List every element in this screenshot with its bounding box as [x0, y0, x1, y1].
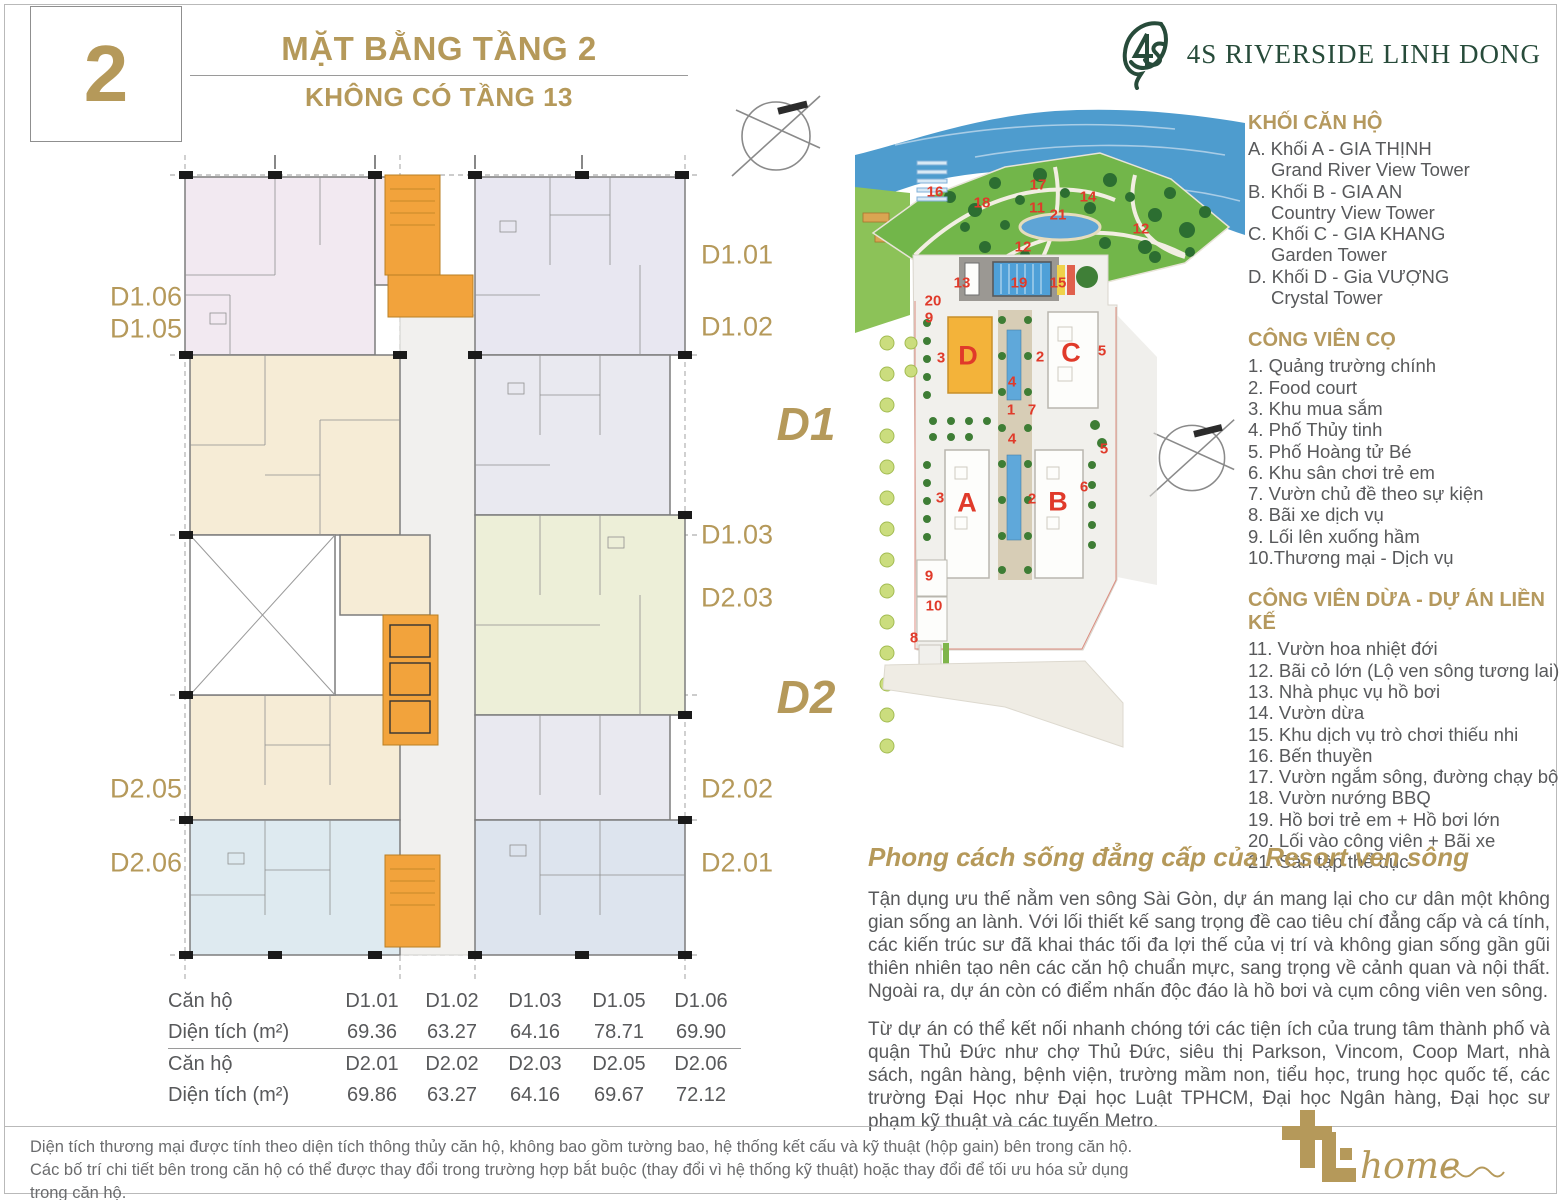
floor-number-box: 2 [30, 6, 182, 142]
brand-name: 4S RIVERSIDE LINH DONG [1187, 39, 1541, 70]
site-building-label: B [1048, 487, 1068, 518]
brochure-page: 2 MẶT BẰNG TẦNG 2 KHÔNG CÓ TẦNG 13 4S RI… [0, 0, 1563, 1200]
legend-item: B. Khối B - GIA AN [1248, 181, 1560, 202]
unit-label: D2.06 [110, 848, 182, 879]
site-point-label: 4 [1008, 374, 1016, 391]
page-title: MẶT BẰNG TẦNG 2 [190, 30, 688, 68]
unit-label: D1.01 [701, 240, 773, 271]
table-cell: D1.02 [411, 986, 493, 1017]
site-point-label: 13 [954, 275, 971, 292]
table-cell: 72.12 [661, 1080, 741, 1111]
legend-item: 8. Bãi xe dịch vụ [1248, 504, 1560, 525]
site-point-label: 7 [1028, 402, 1036, 419]
ttl-home-logo: home [1280, 1108, 1510, 1188]
legend-section-1: CÔNG VIÊN CỌ1. Quảng trường chính2. Food… [1248, 329, 1560, 568]
table-cell: D1.01 [333, 986, 411, 1017]
compass-icon [728, 88, 824, 184]
site-point-label: 4 [1008, 431, 1016, 448]
legend-item: 13. Nhà phục vụ hồ bơi [1248, 681, 1560, 702]
legend-item: 9. Lối lên xuống hầm [1248, 526, 1560, 547]
legend-item: 12. Bãi cỏ lớn (Lộ ven sông tương lai) [1248, 660, 1560, 681]
footer-note-2: Các bố trí chi tiết bên trong căn hộ có … [30, 1159, 1140, 1200]
legend-item: 1. Quảng trường chính [1248, 355, 1560, 376]
floor-plan-drawing [170, 155, 700, 980]
unit-label: D2.02 [701, 774, 773, 805]
site-point-label: 5 [1100, 441, 1108, 458]
site-point-label: 15 [1050, 275, 1067, 292]
table-cell: 69.36 [333, 1017, 411, 1049]
unit-label: D2.01 [701, 848, 773, 879]
legend-item: 15. Khu dịch vụ trò chơi thiếu nhi [1248, 724, 1560, 745]
unit-area-table: Căn hộD1.01D1.02D1.03D1.05D1.06Diện tích… [168, 986, 741, 1111]
site-point-label: 12 [1015, 239, 1032, 256]
site-building-label: D [958, 341, 978, 372]
4s-leaf-icon [1117, 18, 1179, 90]
unit-label: D2.05 [110, 774, 182, 805]
legend-item: 14. Vườn dừa [1248, 702, 1560, 723]
legend-item: Grand River View Tower [1248, 159, 1560, 180]
site-point-label: 8 [910, 630, 918, 647]
legend-item: 16. Bến thuyền [1248, 745, 1560, 766]
table-cell: D2.05 [577, 1049, 661, 1080]
table-row-label: Diện tích (m²) [168, 1080, 333, 1111]
legend-section-2: CÔNG VIÊN DỪA - DỰ ÁN LIỀN KẾ11. Vườn ho… [1248, 589, 1560, 872]
legend-section-title: CÔNG VIÊN CỌ [1248, 329, 1560, 352]
footer-notes: Diện tích thương mại được tính theo diện… [30, 1136, 1140, 1200]
legend-item: A. Khối A - GIA THỊNH [1248, 138, 1560, 159]
table-row-label: Diện tích (m²) [168, 1017, 333, 1049]
table-cell: 78.71 [577, 1017, 661, 1049]
site-point-label: 1 [1007, 402, 1015, 419]
table-cell: D1.06 [661, 986, 741, 1017]
table-cell: D2.02 [411, 1049, 493, 1080]
table-cell: 63.27 [411, 1017, 493, 1049]
site-point-label: 3 [937, 350, 945, 367]
legend-item: 7. Vườn chủ đề theo sự kiện [1248, 483, 1560, 504]
site-point-label: 5 [1098, 343, 1106, 360]
unit-label: D2.03 [701, 583, 773, 614]
legend-item: 2. Food court [1248, 377, 1560, 398]
zone-label: D2 [777, 670, 836, 724]
page-subtitle: KHÔNG CÓ TẦNG 13 [190, 82, 688, 113]
unit-label: D1.06 [110, 282, 182, 313]
site-point-label: 14 [1080, 189, 1097, 206]
ttl-home-text: home [1360, 1146, 1460, 1187]
table-row-label: Căn hộ [168, 1049, 333, 1080]
legend-lists: KHỐI CĂN HỘA. Khối A - GIA THỊNHGrand Ri… [1248, 112, 1560, 894]
table-cell: 69.67 [577, 1080, 661, 1111]
site-building-label: C [1061, 338, 1081, 369]
legend-item: 5. Phố Hoàng tử Bé [1248, 441, 1560, 462]
table-row-label: Căn hộ [168, 986, 333, 1017]
table-cell: D1.05 [577, 986, 661, 1017]
zone-label: D1 [777, 397, 836, 451]
legend-item: Country View Tower [1248, 202, 1560, 223]
site-point-label: 21 [1050, 207, 1067, 224]
site-point-label: 9 [925, 568, 933, 585]
legend-item: 3. Khu mua sắm [1248, 398, 1560, 419]
site-point-label: 2 [1028, 491, 1036, 508]
highlights-block: Phong cách sống đẳng cấp của Resort ven … [868, 842, 1550, 1133]
unit-label: D1.03 [701, 520, 773, 551]
table-cell: 64.16 [493, 1017, 577, 1049]
legend-item: D. Khối D - Gia VƯỢNG [1248, 266, 1560, 287]
legend-item: 19. Hồ bơi trẻ em + Hồ bơi lớn [1248, 809, 1560, 830]
highlights-heading: Phong cách sống đẳng cấp của Resort ven … [868, 842, 1550, 873]
unit-label: D1.05 [110, 314, 182, 345]
table-cell: D2.03 [493, 1049, 577, 1080]
table-cell: 69.90 [661, 1017, 741, 1049]
table-cell: D2.01 [333, 1049, 411, 1080]
legend-item: Garden Tower [1248, 244, 1560, 265]
table-cell: D2.06 [661, 1049, 741, 1080]
site-point-label: 17 [1030, 177, 1047, 194]
legend-item: 18. Vườn nướng BBQ [1248, 787, 1560, 808]
site-point-label: 9 [925, 310, 933, 327]
table-cell: 64.16 [493, 1080, 577, 1111]
site-building-label: A [957, 488, 977, 519]
site-point-label: 10 [926, 598, 943, 615]
title-block: MẶT BẰNG TẦNG 2 KHÔNG CÓ TẦNG 13 [190, 30, 688, 113]
site-point-label: 18 [974, 195, 991, 212]
legend-section-0: KHỐI CĂN HỘA. Khối A - GIA THỊNHGrand Ri… [1248, 112, 1560, 308]
table-cell: 63.27 [411, 1080, 493, 1111]
brand-logo: 4S RIVERSIDE LINH DONG [1117, 18, 1541, 90]
site-point-label: 16 [927, 184, 944, 201]
legend-section-title: KHỐI CĂN HỘ [1248, 112, 1560, 135]
legend-item: 4. Phố Thủy tinh [1248, 419, 1560, 440]
legend-item: 11. Vườn hoa nhiệt đới [1248, 638, 1560, 659]
site-point-label: 11 [1029, 200, 1045, 217]
floor-number: 2 [84, 34, 129, 114]
unit-label: D1.02 [701, 312, 773, 343]
site-point-label: 19 [1011, 275, 1028, 292]
legend-item: 17. Vườn ngắm sông, đường chạy bộ [1248, 766, 1560, 787]
legend-item: 6. Khu sân chơi trẻ em [1248, 462, 1560, 483]
site-point-label: 6 [1080, 479, 1088, 496]
site-point-label: 20 [925, 293, 942, 310]
table-cell: D1.03 [493, 986, 577, 1017]
legend-item: 10.Thương mại - Dịch vụ [1248, 547, 1560, 568]
legend-item: C. Khối C - GIA KHANG [1248, 223, 1560, 244]
footer-note-1: Diện tích thương mại được tính theo diện… [30, 1136, 1140, 1159]
legend-section-title: CÔNG VIÊN DỪA - DỰ ÁN LIỀN KẾ [1248, 589, 1560, 635]
site-point-label: 3 [936, 490, 944, 507]
site-point-label: 12 [1133, 221, 1150, 238]
table-cell: 69.86 [333, 1080, 411, 1111]
legend-item: Crystal Tower [1248, 287, 1560, 308]
site-point-label: 2 [1036, 349, 1044, 366]
highlights-paragraph-1: Tận dụng ưu thế nằm ven sông Sài Gòn, dự… [868, 888, 1550, 1003]
title-divider [190, 75, 688, 76]
